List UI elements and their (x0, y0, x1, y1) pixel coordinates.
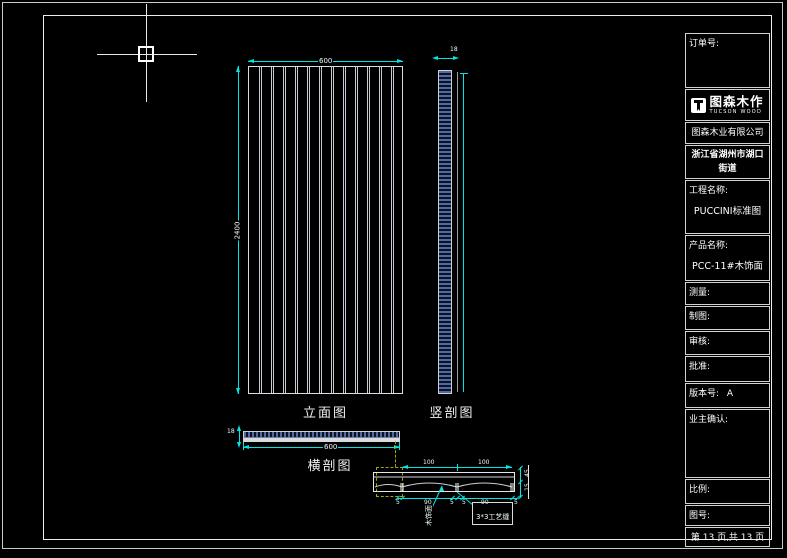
elevation-groove-line (307, 67, 310, 393)
owner-confirm-cell: 业主确认: (685, 409, 770, 478)
measure-cell: 测量: (685, 282, 770, 305)
elevation-groove-line (367, 67, 370, 393)
order-number-label: 订单号: (689, 39, 719, 49)
dim-arrow-icon (243, 445, 249, 449)
elevation-groove-line (319, 67, 322, 393)
horizontal-section-width-dim-text: 600 (323, 444, 338, 451)
elevation-view-label: 立面图 (248, 402, 403, 421)
product-name-label: 产品名称: (689, 238, 766, 251)
owner-confirm-label: 业主确认: (689, 415, 728, 425)
dim-arrow-icon (432, 56, 438, 60)
company-address-cell: 浙江省湖州市湖口街道 城中路1号 (685, 145, 770, 179)
detail-surface-label: 木饰面 (426, 504, 433, 527)
elevation-height-dim-text: 2400 (234, 221, 241, 241)
page-number-cell: 第 13 页,共 13 页 (685, 527, 770, 547)
approve-label: 批准: (689, 362, 710, 372)
approve-cell: 批准: (685, 356, 770, 382)
order-number-cell: 订单号: (685, 33, 770, 88)
tucson-logo-icon (691, 98, 706, 113)
vertical-section-strip (438, 70, 452, 394)
elevation-groove-line (295, 67, 298, 393)
horizontal-section-width-dim-line (243, 447, 400, 448)
elevation-groove-line (271, 67, 274, 393)
logo-cell: 图森木作 TUCSON WOOD (685, 89, 770, 121)
elevation-groove-line (379, 67, 382, 393)
horizontal-section-face-layer (244, 437, 399, 442)
title-block: 订单号: 图森木作 TUCSON WOOD 图森木业有限公司 浙江省湖州市湖口街… (685, 33, 770, 548)
scale-cell: 比例: (685, 479, 770, 504)
elevation-grooves (249, 67, 402, 393)
horizontal-section-thickness-dim-text: 18 (226, 429, 236, 435)
vertical-section-thickness-dim-line (437, 58, 453, 59)
vertical-section-view-label: 竖剖图 (422, 402, 482, 421)
version-value: A (727, 389, 733, 399)
address-line-2: 城中路1号 (689, 177, 766, 179)
vertical-section-edge-line (457, 72, 458, 392)
product-name-cell: 产品名称: PCC-11#木饰面 (685, 235, 770, 281)
vertical-section-thickness-dim-text: 18 (449, 47, 459, 53)
dim-arrow-icon (237, 425, 241, 431)
elevation-groove-line (283, 67, 286, 393)
project-name-cell: 工程名称: PUCCINI标准图 (685, 180, 770, 234)
dim-arrow-icon (236, 388, 240, 394)
scale-label: 比例: (689, 485, 710, 495)
dim-arrow-icon (248, 59, 254, 63)
product-name-value: PCC-11#木饰面 (689, 258, 766, 272)
version-cell: 版本号: A (685, 383, 770, 408)
draft-label: 制图: (689, 312, 710, 322)
review-cell: 审核: (685, 331, 770, 355)
dim-arrow-icon (397, 59, 403, 63)
elevation-panel-outline (248, 66, 403, 394)
review-label: 审核: (689, 337, 710, 347)
version-label: 版本号: (689, 389, 719, 399)
elevation-groove-line (259, 67, 262, 393)
horizontal-section-strip (243, 431, 400, 442)
logo-name-text: 图森木作 (709, 95, 763, 109)
vertical-section-dim-tick (460, 73, 468, 74)
logo-sub-text: TUCSON WOOD (709, 109, 763, 115)
horizontal-section-thickness-dim-line (239, 431, 240, 442)
groove-callout-text: 3*3工艺缝 (475, 513, 510, 521)
dim-arrow-icon (236, 66, 240, 72)
elevation-width-dim-text: 600 (318, 58, 333, 65)
elevation-groove-line (343, 67, 346, 393)
dim-arrow-icon (237, 442, 241, 448)
project-name-value: PUCCINI标准图 (689, 203, 766, 217)
vertical-section-height-dim-line (463, 73, 464, 392)
elevation-groove-line (331, 67, 334, 393)
elevation-groove-line (355, 67, 358, 393)
cad-sheet: { "colors": { "background": "#000000", "… (0, 0, 787, 558)
groove-callout-box: 3*3工艺缝 (472, 502, 513, 525)
dim-arrow-icon (453, 56, 459, 60)
draft-cell: 制图: (685, 306, 770, 330)
drawing-number-cell: 图号: (685, 505, 770, 526)
drawing-number-label: 图号: (689, 511, 710, 521)
company-name-cell: 图森木业有限公司 (685, 122, 770, 144)
project-name-label: 工程名称: (689, 183, 766, 196)
crosshair-square (138, 46, 154, 62)
measure-label: 测量: (689, 288, 710, 298)
elevation-groove-line (391, 67, 394, 393)
address-line-1: 浙江省湖州市湖口街道 (689, 148, 766, 177)
